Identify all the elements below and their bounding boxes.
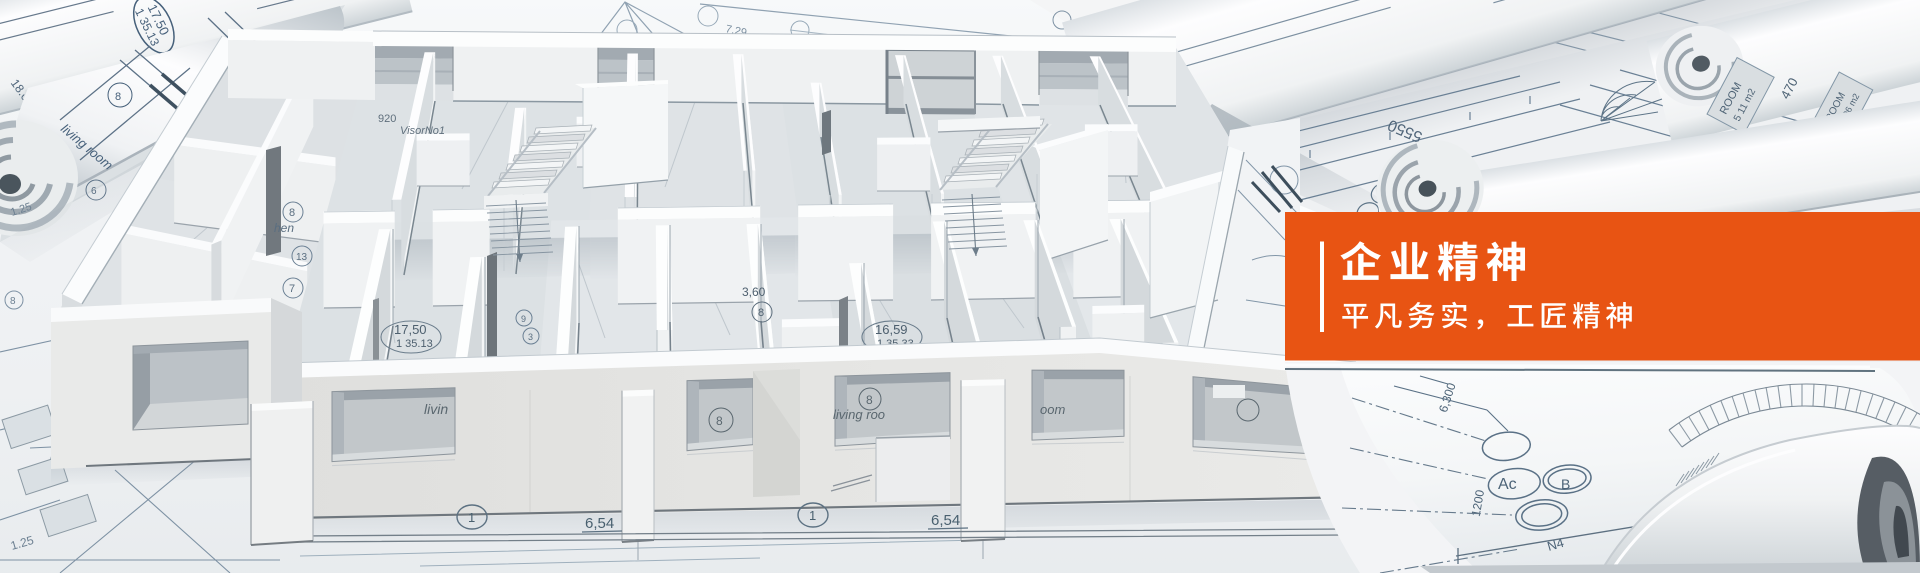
svg-text:1: 1 bbox=[468, 510, 475, 525]
svg-text:1: 1 bbox=[809, 508, 816, 523]
svg-text:17,50: 17,50 bbox=[394, 322, 427, 337]
svg-text:8: 8 bbox=[866, 393, 873, 407]
svg-text:hen: hen bbox=[274, 221, 294, 235]
svg-text:B: B bbox=[1561, 476, 1570, 492]
svg-text:VisorNo1: VisorNo1 bbox=[400, 125, 445, 137]
svg-text:livin: livin bbox=[424, 401, 448, 417]
svg-text:8: 8 bbox=[289, 207, 295, 219]
svg-text:7: 7 bbox=[289, 283, 295, 295]
svg-text:1 35.13: 1 35.13 bbox=[396, 338, 433, 350]
svg-text:9: 9 bbox=[521, 314, 526, 324]
svg-text:8: 8 bbox=[10, 296, 16, 307]
svg-text:oom: oom bbox=[1040, 402, 1065, 417]
svg-text:8: 8 bbox=[115, 91, 121, 103]
svg-text:920: 920 bbox=[378, 113, 396, 125]
svg-text:living roo: living roo bbox=[833, 407, 885, 422]
svg-text:3: 3 bbox=[528, 332, 533, 342]
svg-text:Ac: Ac bbox=[1498, 476, 1517, 493]
svg-text:6,54: 6,54 bbox=[585, 515, 614, 532]
svg-text:8: 8 bbox=[758, 307, 764, 319]
svg-text:8: 8 bbox=[716, 414, 723, 428]
svg-text:6,54: 6,54 bbox=[931, 512, 960, 529]
svg-text:16,59: 16,59 bbox=[875, 322, 908, 337]
svg-text:3,60: 3,60 bbox=[742, 285, 766, 299]
svg-text:13: 13 bbox=[296, 252, 308, 263]
